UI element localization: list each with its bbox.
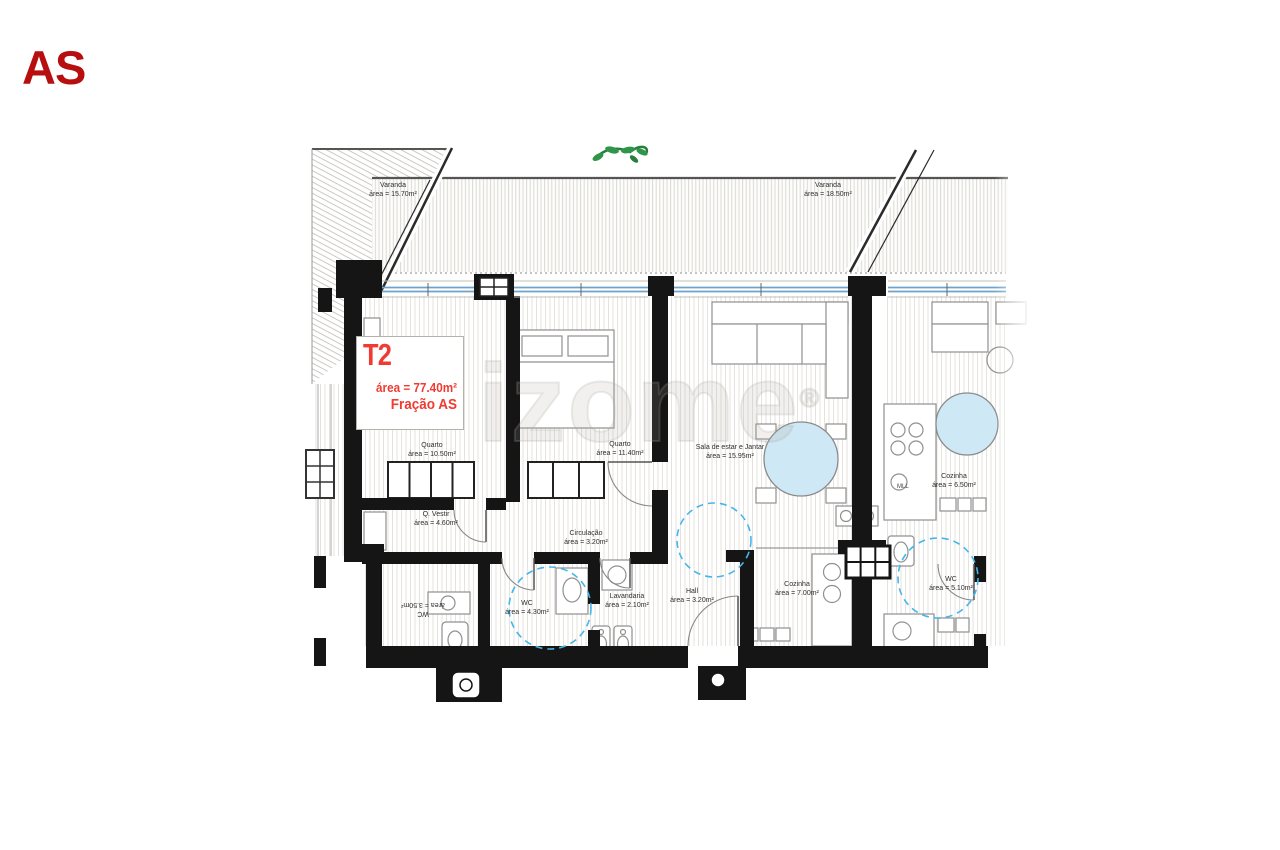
bed-quarto2 xyxy=(516,330,614,428)
ventilation-shaft xyxy=(846,546,890,578)
fraction-corner-label: AS xyxy=(22,40,85,95)
plant-icon xyxy=(591,145,648,164)
room-label-cozinha-vizinha: Cozinha área = 6.50m² xyxy=(909,472,999,490)
room-label-sala: Sala de estar e Jantar área = 15.95m² xyxy=(670,443,790,461)
floorplan-page: AS xyxy=(0,0,1280,850)
room-label-quarto-2: Quarto área = 11.40m² xyxy=(575,440,665,458)
balcony-main xyxy=(372,178,1008,273)
left-facade-window-icon xyxy=(306,450,334,498)
unit-fraction: Fração AS xyxy=(372,396,457,413)
room-label-cozinha: Cozinha área = 7.00m² xyxy=(752,580,842,598)
closet-quarto2 xyxy=(528,462,604,498)
room-label-varanda-left: Varanda área = 15.70m² xyxy=(348,181,438,199)
unit-area: área = 77.40m² xyxy=(372,380,457,395)
room-label-varanda-right: Varanda área = 18.50m² xyxy=(783,181,873,199)
dining-table xyxy=(756,422,846,503)
floorplan-drawing xyxy=(0,0,1280,850)
room-label-wc-vizinho: WC área = 5.10m² xyxy=(906,575,996,593)
unit-code: T2 xyxy=(363,339,440,371)
unit-info-card: T2 área = 77.40m² Fração AS xyxy=(356,336,464,430)
room-label-circulacao: Circulação área = 3.20m² xyxy=(541,529,631,547)
appliance-label-mll: MLL xyxy=(897,484,909,490)
room-label-hall: Hall área = 3.20m² xyxy=(647,587,737,605)
pane-window-icon xyxy=(480,278,508,296)
right-edge-fade xyxy=(995,130,1050,710)
room-label-wc-1: WC área = 4.30m² xyxy=(482,599,572,617)
closet-quarto1 xyxy=(388,462,474,498)
room-label-q-vestir: Q. Vestir área = 4.60m² xyxy=(391,510,481,528)
room-label-wc-invertido: WC área = 3.50m² xyxy=(378,600,468,618)
room-label-quarto-1: Quarto área = 10.50m² xyxy=(387,441,477,459)
